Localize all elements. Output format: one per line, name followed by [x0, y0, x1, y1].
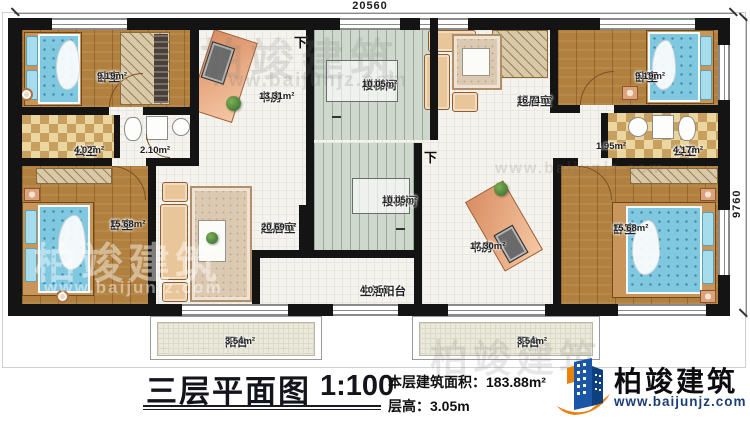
- wall: [398, 304, 448, 316]
- dimension-right: 9760: [731, 166, 743, 218]
- window: [52, 18, 127, 30]
- brand-url: www.baijunjz.com: [614, 394, 747, 409]
- toilet: [678, 116, 696, 141]
- room-area: 3.54m²: [225, 337, 255, 347]
- window: [718, 210, 730, 275]
- wall: [553, 166, 561, 304]
- wash-basin: [172, 118, 190, 136]
- floor-area-value: 183.88m²: [486, 374, 546, 390]
- title-underline: [143, 405, 381, 407]
- wall: [706, 304, 730, 316]
- room-area: 4.02m²: [74, 146, 104, 156]
- wall: [146, 158, 199, 166]
- wash-basin: [628, 117, 648, 137]
- room-area: 13.31m²: [259, 92, 294, 102]
- wall: [553, 158, 578, 166]
- wall: [190, 18, 199, 166]
- nightstand: [622, 86, 638, 100]
- armchair: [162, 282, 188, 302]
- room-area: 20.69m²: [261, 223, 296, 233]
- plant: [226, 96, 241, 111]
- bed-pillow: [700, 36, 712, 66]
- closet-door: [154, 34, 168, 103]
- room-area: 10.05m²: [362, 80, 397, 90]
- bed-pillow: [26, 36, 38, 66]
- wall: [22, 107, 109, 115]
- stool: [56, 290, 69, 303]
- wall: [22, 158, 112, 166]
- bed-pillow: [702, 212, 714, 246]
- wall: [614, 105, 718, 113]
- wall: [558, 105, 580, 113]
- balcony-right-floor: [419, 322, 593, 356]
- window: [718, 45, 730, 100]
- stair-tick: [396, 228, 405, 230]
- coffee-table: [462, 48, 490, 76]
- sink-counter: [652, 115, 674, 139]
- bed-pillow: [25, 210, 37, 244]
- floor-area-info: 本层建筑面积：183.88m²: [388, 372, 546, 392]
- wall: [468, 18, 600, 30]
- wall: [718, 18, 730, 45]
- window: [600, 18, 695, 30]
- room-area: 1.95m²: [596, 142, 626, 152]
- closet-hatch: [630, 168, 718, 184]
- wall: [545, 304, 618, 316]
- wall: [430, 18, 438, 140]
- wall: [114, 115, 120, 158]
- wall: [718, 100, 730, 210]
- floor-height-info: 层高：3.05m: [388, 396, 470, 416]
- floor-height-label: 层高：: [388, 398, 430, 414]
- wall: [612, 158, 718, 166]
- nightstand: [24, 188, 40, 201]
- room-area: 15.68m²: [110, 220, 145, 230]
- dimension-line-right: [746, 18, 747, 316]
- window: [333, 304, 398, 316]
- balcony-door: [448, 304, 545, 316]
- room-area: 4.03m²: [360, 286, 390, 296]
- window: [420, 18, 468, 30]
- bed-pillow: [702, 250, 714, 284]
- dimension-line-top: [14, 13, 736, 14]
- bed-sheet: [56, 40, 80, 90]
- brand-logo-icon: [554, 356, 612, 418]
- stair-tick: [332, 116, 341, 118]
- room-area: 10.05m²: [382, 196, 417, 206]
- title-underline: [143, 409, 381, 410]
- balcony-door: [182, 304, 288, 316]
- stairs-down-label: 下: [424, 147, 437, 166]
- closet-hatch: [36, 168, 112, 184]
- room-area: 16.71m²: [517, 96, 552, 106]
- room-area: 4.17m²: [673, 146, 703, 156]
- wall: [288, 304, 333, 316]
- wall: [414, 143, 422, 304]
- wall: [252, 258, 260, 304]
- room-area: 15.68m²: [613, 224, 648, 234]
- plant: [206, 232, 218, 244]
- room-area: 3.54m²: [517, 337, 547, 347]
- room-area: 2.10m²: [140, 146, 170, 156]
- bed-pillow: [25, 248, 37, 282]
- floor-area-label: 本层建筑面积：: [388, 374, 486, 390]
- nightstand: [700, 290, 716, 303]
- room-area: 9.19m²: [635, 72, 665, 82]
- room-area: 17.30m²: [470, 242, 505, 252]
- armchair: [162, 182, 188, 202]
- floor-plan-canvas: 20560 9760: [0, 0, 750, 421]
- room-area: 9.19m²: [97, 72, 127, 82]
- wall: [252, 250, 422, 258]
- plant: [494, 182, 508, 196]
- dimension-top: 20560: [340, 0, 400, 12]
- window: [340, 18, 400, 30]
- bed-pillow: [700, 70, 712, 100]
- wall: [143, 107, 199, 115]
- wall: [8, 304, 182, 316]
- drawing-scale: 1:100: [320, 370, 394, 403]
- window: [618, 304, 706, 316]
- stairs-down-label: 下: [294, 32, 307, 51]
- floor-height-value: 3.05m: [430, 398, 470, 414]
- bed-sheet: [58, 215, 86, 270]
- wall: [400, 18, 420, 30]
- sofa: [160, 204, 188, 280]
- wall: [148, 166, 156, 304]
- toilet: [124, 117, 142, 141]
- wall: [306, 18, 314, 258]
- armchair: [452, 92, 478, 112]
- nightstand: [700, 188, 716, 201]
- wall: [8, 18, 22, 316]
